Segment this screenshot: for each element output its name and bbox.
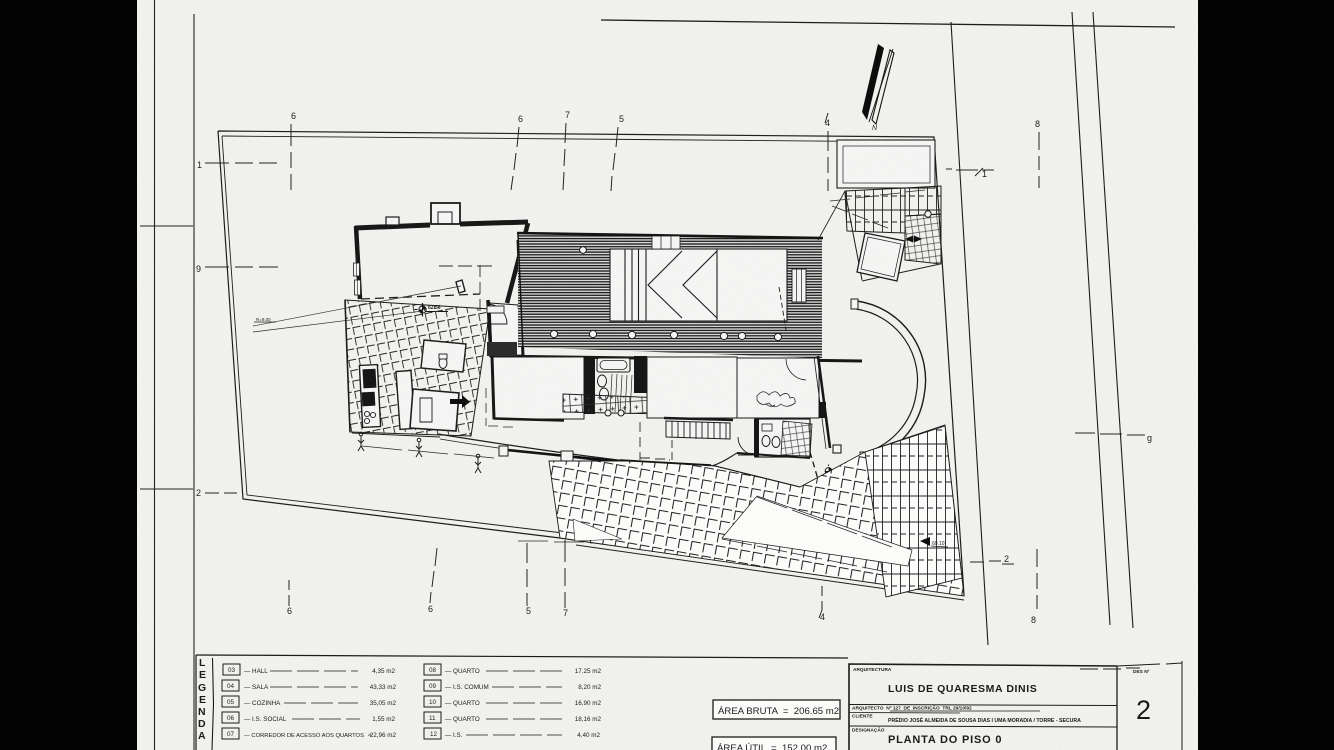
svg-text:E: E: [199, 694, 206, 706]
svg-text:1,55 m2: 1,55 m2: [372, 716, 395, 723]
svg-text:ARQUITECTURA: ARQUITECTURA: [853, 667, 892, 673]
svg-text:— SALA: — SALA: [244, 684, 269, 691]
svg-text:CLIENTE: CLIENTE: [852, 714, 873, 720]
svg-text:18,16 m2: 18,16 m2: [575, 716, 602, 723]
svg-text:— HALL: — HALL: [244, 668, 268, 675]
svg-text:06: 06: [227, 715, 235, 722]
svg-text:N: N: [198, 706, 206, 718]
svg-text:4,40 m2: 4,40 m2: [577, 732, 600, 739]
svg-text:22,96 m2: 22,96 m2: [370, 732, 397, 739]
svg-text:G: G: [198, 682, 206, 694]
svg-text:ARQUITECTO Nº 127 DE INSCRI: ARQUITECTO Nº 127 DE INSCRIÇÃO TRL 29/10…: [852, 705, 972, 712]
svg-text:09: 09: [429, 683, 437, 690]
svg-text:E: E: [199, 669, 206, 681]
svg-text:— QUARTO: — QUARTO: [445, 668, 480, 675]
svg-text:LUIS DE QUARESMA DINIS: LUIS DE QUARESMA DINIS: [888, 683, 1037, 695]
svg-text:— QUARTO: — QUARTO: [445, 716, 480, 723]
svg-text:8,20 m2: 8,20 m2: [578, 684, 601, 691]
svg-text:ÁREA ÚTIL = 152.00 m2: ÁREA ÚTIL = 152.00 m2: [717, 743, 827, 750]
svg-text:D: D: [198, 718, 206, 730]
svg-text:12: 12: [430, 731, 438, 738]
svg-text:08: 08: [429, 667, 437, 674]
svg-text:2: 2: [1136, 695, 1151, 725]
svg-text:16,90 m2: 16,90 m2: [575, 700, 602, 707]
svg-text:DESIGNAÇÃO: DESIGNAÇÃO: [852, 727, 885, 734]
svg-text:04: 04: [227, 683, 235, 690]
svg-text:ÁREA BRUTA = 206.65 m2: ÁREA BRUTA = 206.65 m2: [718, 706, 839, 717]
svg-text:07: 07: [227, 731, 235, 738]
svg-text:A: A: [198, 730, 206, 742]
svg-text:— I.S. COMUM: — I.S. COMUM: [445, 684, 489, 691]
svg-text:35,05 m2: 35,05 m2: [370, 700, 397, 707]
svg-text:DES Nº: DES Nº: [1133, 669, 1150, 675]
svg-text:— QUARTO: — QUARTO: [445, 700, 480, 707]
svg-text:— I.S. SOCIAL: — I.S. SOCIAL: [244, 716, 287, 723]
svg-text:05: 05: [227, 699, 235, 706]
svg-text:4,35 m2: 4,35 m2: [372, 668, 395, 675]
svg-text:— CORREDOR DE ACESSO AOS QUART: — CORREDOR DE ACESSO AOS QUARTOS: [244, 733, 364, 739]
svg-text:43,33 m2: 43,33 m2: [370, 684, 397, 691]
svg-text:PRÉDIO JOSÉ ALMEIDA DE SOUSA D: PRÉDIO JOSÉ ALMEIDA DE SOUSA DIAS I UMA …: [888, 716, 1081, 724]
svg-text:03: 03: [228, 667, 236, 674]
svg-text:— I.S.: — I.S.: [445, 732, 463, 739]
svg-text:PLANTA DO PISO 0: PLANTA DO PISO 0: [888, 734, 1002, 746]
svg-text:L: L: [199, 657, 206, 669]
svg-text:11: 11: [429, 715, 436, 722]
svg-text:10: 10: [429, 699, 437, 706]
svg-text:— COZINHA: — COZINHA: [244, 700, 281, 707]
svg-text:17.25 m2: 17.25 m2: [575, 668, 602, 675]
